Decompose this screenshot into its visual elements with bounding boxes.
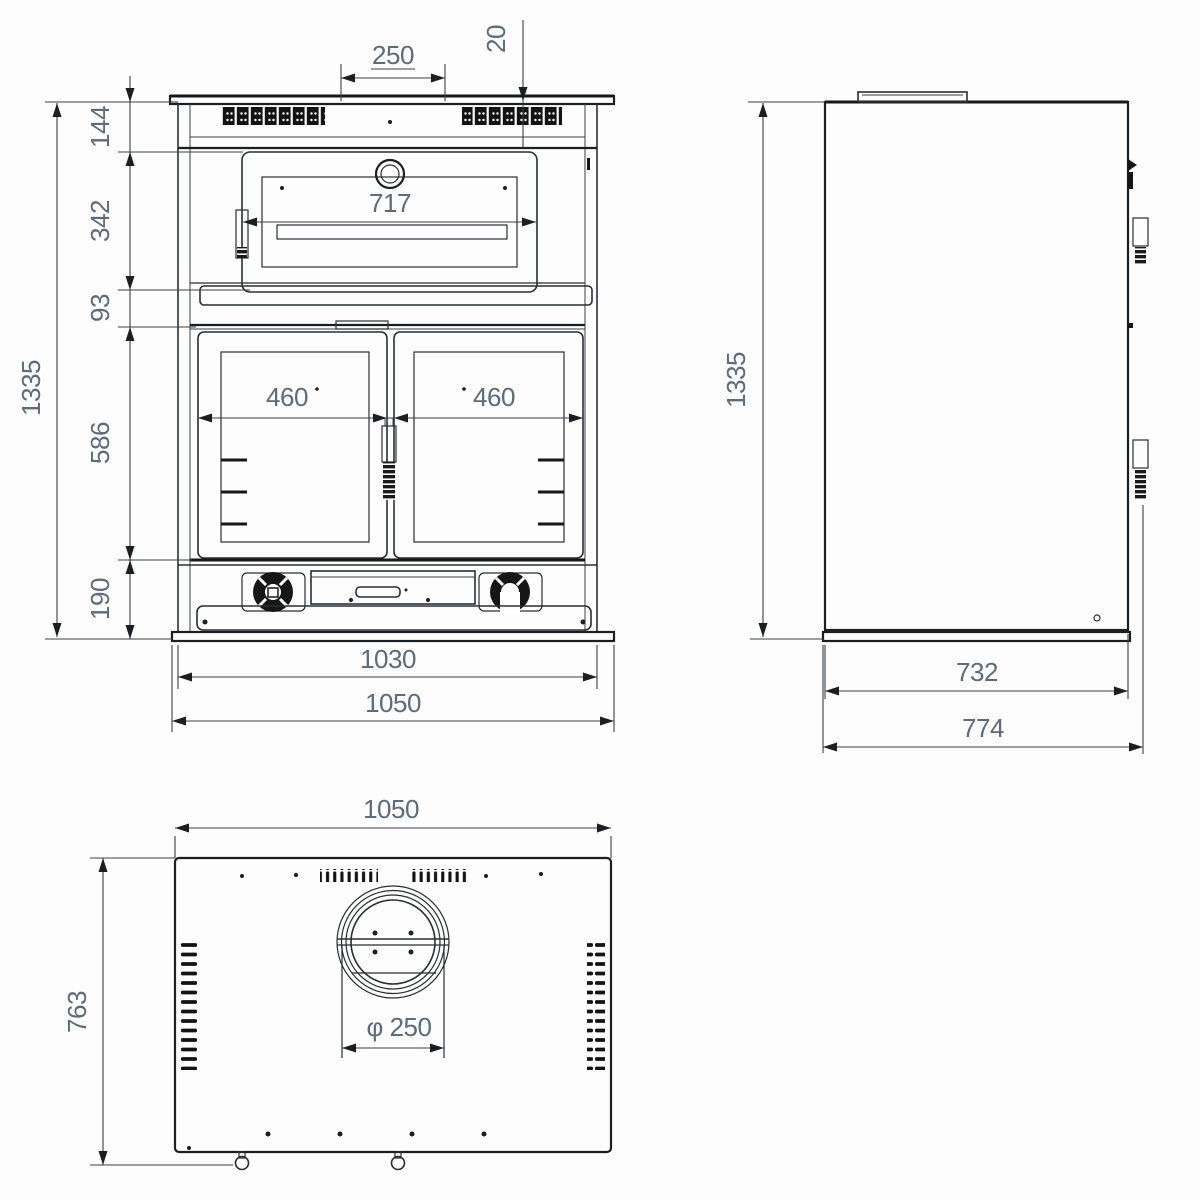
front-structure bbox=[170, 96, 614, 632]
bottom-dimensions: 1050 763 φ 250 bbox=[62, 794, 611, 1165]
feet bbox=[236, 1152, 405, 1170]
side-hinges-and-handles bbox=[1094, 159, 1148, 621]
stove-dimension-drawing: 250 20 1335 144 342 bbox=[0, 0, 1200, 1200]
dim-flue-diameter: φ 250 bbox=[367, 1012, 432, 1042]
front-dimensions: 250 20 1335 144 342 bbox=[16, 20, 614, 732]
dim-top-section: 144 bbox=[85, 106, 115, 148]
side-dimensions: 1335 732 774 bbox=[721, 102, 1143, 754]
oven-door-handle bbox=[277, 225, 507, 239]
dim-left-door-width: 460 bbox=[266, 382, 308, 412]
dim-hotplate-thickness: 20 bbox=[481, 25, 511, 53]
dim-oven-door-width: 717 bbox=[369, 188, 411, 218]
side-view: 1335 732 774 bbox=[721, 92, 1148, 754]
side-structure bbox=[823, 92, 1148, 641]
dim-body-depth: 732 bbox=[956, 657, 998, 687]
dim-hotplate-opening: 250 bbox=[372, 40, 414, 70]
firebox-glass-right bbox=[414, 352, 564, 542]
hob-grille-left bbox=[222, 107, 325, 125]
ash-drawer-handle bbox=[356, 587, 400, 597]
vent-ticks-top-right bbox=[411, 869, 467, 882]
dim-firebox-section: 586 bbox=[85, 422, 115, 464]
dim-bottom-overall-depth: 763 bbox=[62, 991, 92, 1033]
ash-drawer bbox=[311, 571, 475, 604]
dim-base-section: 190 bbox=[85, 578, 115, 620]
plinth bbox=[197, 606, 591, 630]
vent-slots-left bbox=[181, 938, 199, 1070]
front-bottom-band bbox=[172, 571, 614, 641]
vent-slots-right bbox=[587, 938, 605, 1070]
dim-side-overall-height: 1335 bbox=[721, 352, 751, 408]
dim-front-overall-height: 1335 bbox=[16, 360, 46, 416]
dim-front-overall-width: 1050 bbox=[365, 688, 421, 718]
front-view: 250 20 1335 144 342 bbox=[16, 20, 614, 732]
firebox-doors bbox=[178, 321, 597, 565]
dim-overall-depth: 774 bbox=[962, 713, 1004, 743]
dim-right-door-width: 460 bbox=[473, 382, 515, 412]
dim-oven-section: 342 bbox=[85, 200, 115, 242]
side-base-slab bbox=[823, 632, 1130, 641]
vent-ticks-top-left bbox=[320, 869, 378, 882]
side-body bbox=[825, 102, 1128, 630]
dim-bottom-overall-width: 1050 bbox=[363, 794, 419, 824]
hob-grille-right bbox=[462, 107, 562, 125]
technical-drawing-page: 250 20 1335 144 342 bbox=[0, 0, 1200, 1200]
screw-holes bbox=[187, 872, 543, 1150]
bottom-view: 1050 763 φ 250 bbox=[62, 794, 611, 1170]
fan-right-icon bbox=[479, 572, 542, 613]
bottom-plate bbox=[175, 858, 611, 1152]
base-slab bbox=[172, 632, 614, 641]
dim-shelf-gap: 93 bbox=[85, 294, 115, 322]
shelf-band bbox=[190, 283, 592, 305]
dim-body-width: 1030 bbox=[360, 644, 416, 674]
oven-door-knob bbox=[376, 160, 404, 188]
firebox-glass-left bbox=[221, 352, 369, 542]
